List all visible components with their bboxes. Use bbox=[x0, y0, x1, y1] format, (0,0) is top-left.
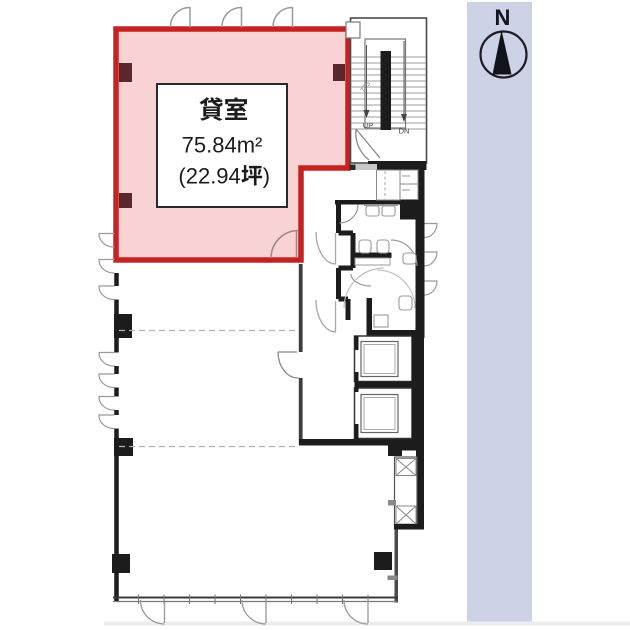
svg-text:): ) bbox=[263, 164, 270, 189]
svg-text:(22.94: (22.94 bbox=[178, 164, 240, 189]
svg-text:N: N bbox=[495, 5, 511, 30]
svg-text:75.84m²: 75.84m² bbox=[182, 133, 263, 158]
svg-text:DN: DN bbox=[399, 127, 410, 136]
svg-text:UP: UP bbox=[363, 121, 373, 130]
